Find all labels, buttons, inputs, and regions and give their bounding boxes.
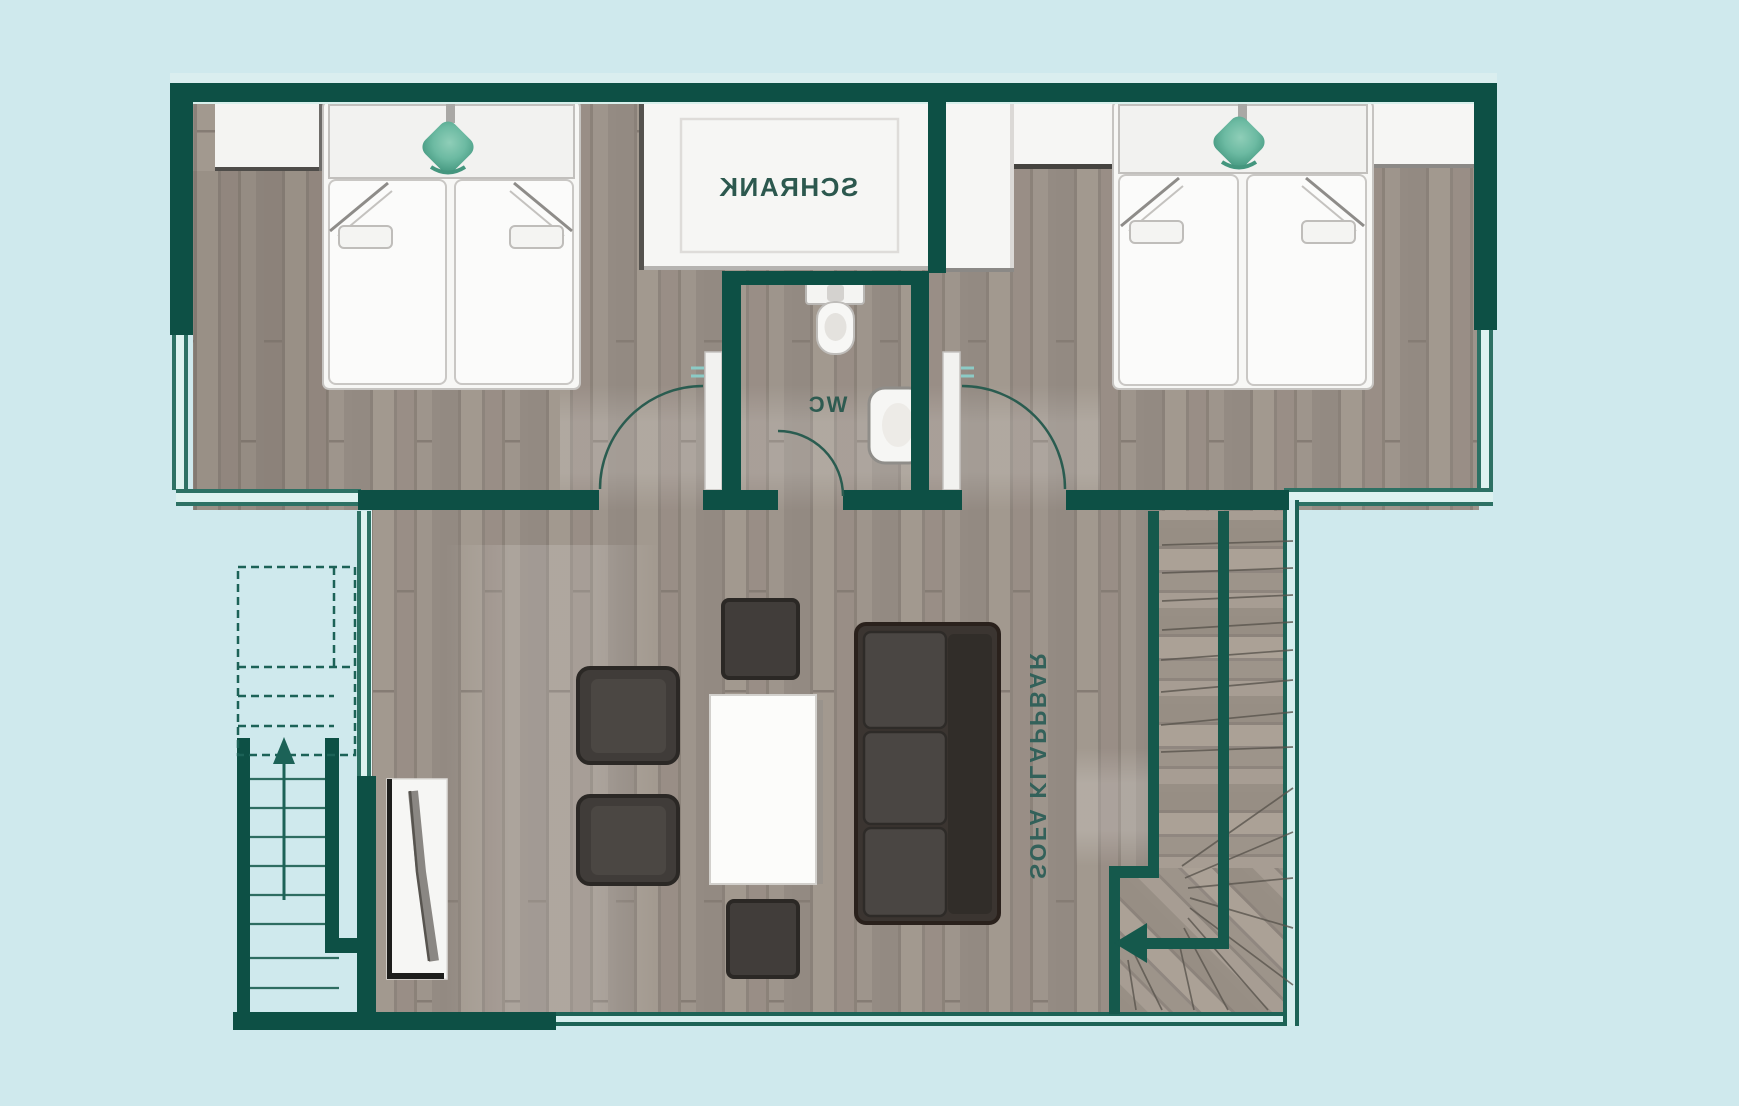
svg-text:SCHRANK: SCHRANK xyxy=(718,172,859,202)
svg-text:SOFA KLAPPBAR: SOFA KLAPPBAR xyxy=(1025,651,1051,879)
svg-text:WC: WC xyxy=(807,392,848,417)
